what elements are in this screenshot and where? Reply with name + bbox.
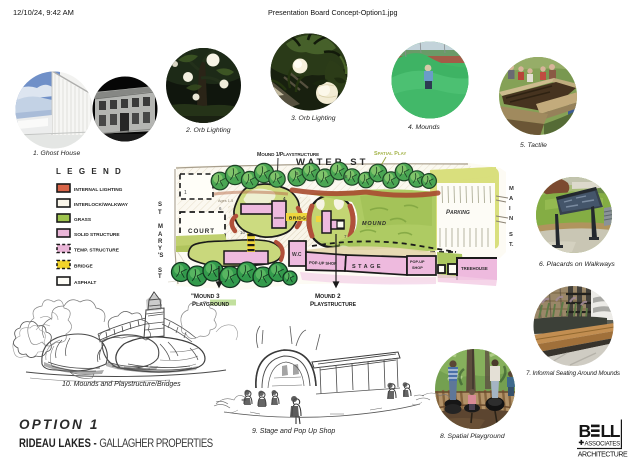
svg-text:I: I (509, 206, 511, 212)
svg-text:T: T (158, 210, 162, 216)
svg-text:S: S (509, 232, 513, 238)
svg-text:GRASS: GRASS (74, 217, 92, 223)
svg-text:TEMP. STRUCTURE: TEMP. STRUCTURE (74, 248, 120, 254)
svg-text:T: T (158, 274, 162, 280)
svg-text:1: 1 (184, 190, 187, 196)
svg-text:TREEHOUSE: TREEHOUSE (461, 266, 488, 271)
svg-text:SPATIAL PLAY: SPATIAL PLAY (374, 151, 406, 157)
svg-text:INTERNAL LIGHTING: INTERNAL LIGHTING (74, 187, 123, 193)
svg-text:Y: Y (158, 246, 162, 252)
svg-text:LL: LL (601, 421, 621, 441)
svg-text:PLAYGROUND: PLAYGROUND (192, 301, 229, 308)
svg-text:MOUND: MOUND (362, 221, 387, 227)
svg-text:ASSOCIATES: ASSOCIATES (585, 442, 621, 448)
svg-text:LEGEND: LEGEND (56, 167, 127, 176)
svg-text:9. Stage and Pop Up Shop: 9. Stage and Pop Up Shop (252, 428, 335, 435)
svg-text:'S: 'S (158, 253, 163, 259)
svg-text:PARKING: PARKING (446, 210, 470, 216)
svg-text:INTERLOCK/WALKWAY: INTERLOCK/WALKWAY (74, 202, 129, 208)
svg-text:POP-UP SHOP: POP-UP SHOP (309, 260, 337, 266)
svg-text:ARCHITECTURE: ARCHITECTURE (578, 452, 628, 459)
svg-text:M: M (509, 186, 514, 192)
svg-text:MOUND 2: MOUND 2 (315, 293, 341, 300)
svg-text:4: 4 (283, 196, 286, 201)
svg-text:PLAYSTRUCTURE: PLAYSTRUCTURE (310, 301, 357, 308)
svg-text:M: M (158, 224, 163, 230)
svg-text:S: S (158, 202, 162, 208)
svg-text:T.: T. (509, 242, 514, 248)
svg-text:"MOUND 3: "MOUND 3 (191, 293, 220, 300)
svg-text:ASPHALT: ASPHALT (74, 280, 96, 286)
svg-text:A: A (158, 232, 163, 238)
svg-text:A: A (509, 196, 514, 202)
svg-text:R: R (158, 239, 163, 245)
svg-text:SOLID STRUCTURE: SOLID STRUCTURE (74, 232, 120, 238)
svg-text:W.C: W.C (292, 252, 302, 258)
svg-text:BRIDGE: BRIDGE (74, 264, 93, 270)
svg-text:STAGE: STAGE (352, 264, 383, 270)
svg-text:10. Mounds and Playstructure/B: 10. Mounds and Playstructure/Bridges (62, 381, 181, 388)
svg-text:SHOP: SHOP (412, 266, 423, 270)
svg-text:N: N (509, 216, 513, 222)
svg-text:B: B (579, 421, 592, 441)
svg-text:Ages 1-5: Ages 1-5 (218, 199, 233, 203)
svg-text:COURT: COURT (188, 228, 215, 235)
svg-text:POP-UP: POP-UP (410, 260, 425, 264)
